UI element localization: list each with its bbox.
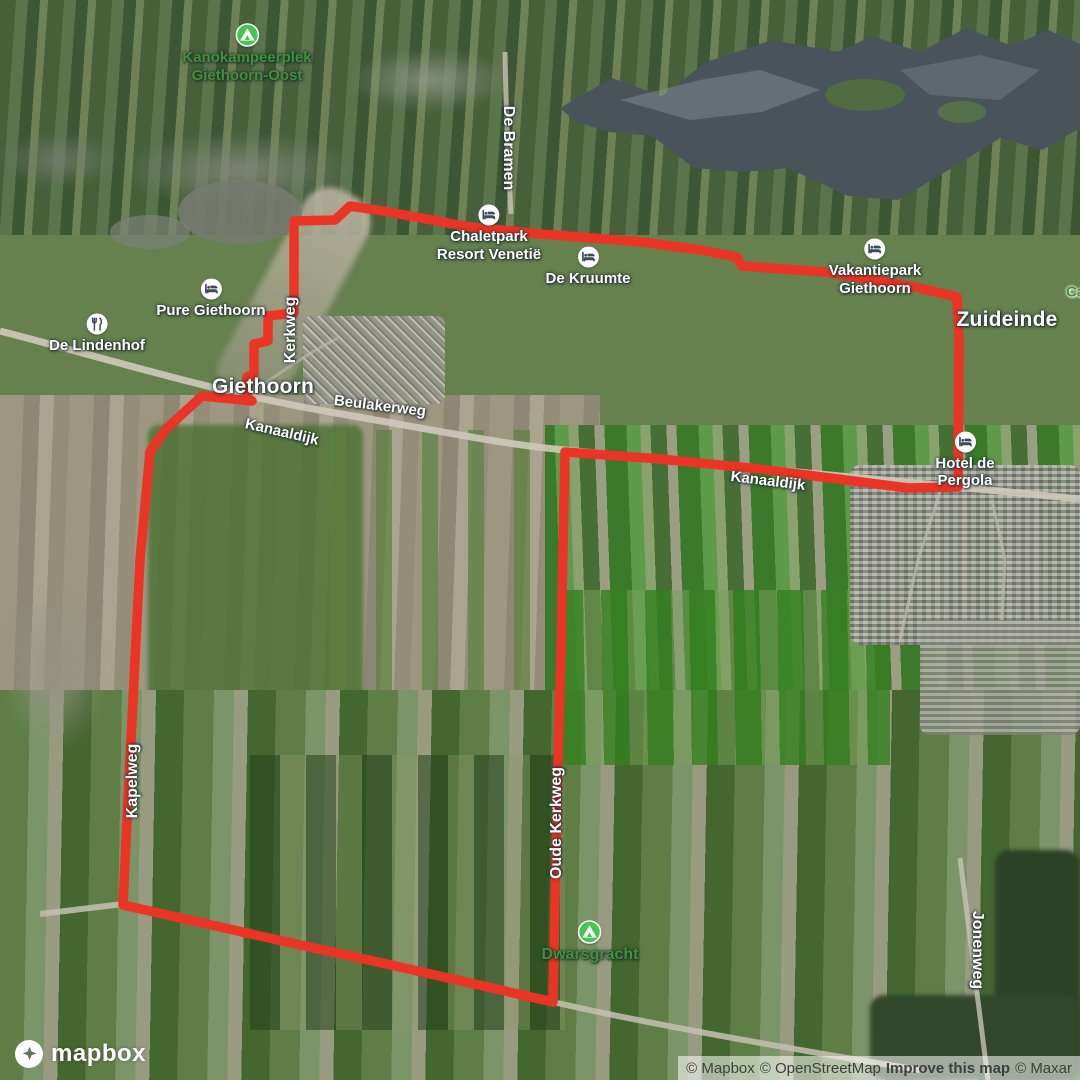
kanokampeerplek-label-line2: Giethoorn-Oost (192, 67, 303, 84)
chaletpark-label-line2: Resort Venetië (437, 246, 541, 263)
dwarsgracht-label: Dwarsgracht (542, 946, 639, 964)
mapbox-wordmark: mapbox (51, 1040, 146, 1068)
place-label-giethoorn: Giethoorn (212, 375, 314, 399)
lodging-icon (477, 203, 501, 227)
poi-de-lindenhof: De Lindenhof (49, 312, 145, 354)
pure-giethoorn-label: Pure Giethoorn (156, 302, 265, 319)
camping-label-partial: Ca (1066, 284, 1080, 301)
road-label-kapelweg: Kapelweg (124, 744, 142, 819)
map-canvas[interactable]: Kanokampeerplek Giethoorn-Oost Dwarsgrac… (0, 0, 1080, 1080)
attribution-improve-link[interactable]: Improve this map (886, 1060, 1010, 1077)
attribution-mapbox-link[interactable]: © Mapbox (686, 1060, 755, 1077)
road-label-jonenweg: Jonenweg (968, 911, 986, 989)
lodging-icon (863, 237, 887, 261)
mapbox-logo[interactable]: mapbox (14, 1039, 146, 1069)
attribution-osm-link[interactable]: © OpenStreetMap (760, 1060, 881, 1077)
poi-vakantiepark: Vakantiepark Giethoorn (829, 237, 922, 298)
poi-pure-giethoorn: Pure Giethoorn (156, 277, 265, 319)
restaurant-icon (85, 312, 109, 336)
poi-hotel-de-pergola: Hotel de Pergola (908, 430, 1023, 490)
poi-dwarsgracht: Dwarsgracht (542, 919, 639, 964)
vakantiepark-label-line1: Vakantiepark (829, 262, 922, 279)
place-label-zuideinde: Zuideinde (957, 308, 1058, 332)
road-label-kerkweg: Kerkweg (282, 297, 300, 364)
de-kruumte-label: De Kruumte (545, 270, 630, 287)
hotel-de-pergola-label: Hotel de Pergola (908, 455, 1023, 490)
campground-icon (234, 22, 260, 48)
road-label-de-bramen: De Bramen (499, 106, 517, 190)
lodging-icon (576, 245, 600, 269)
attribution-bar: © Mapbox © OpenStreetMap Improve this ma… (678, 1056, 1080, 1080)
poi-chaletpark: Chaletpark Resort Venetië (437, 203, 541, 264)
vakantiepark-label-line2: Giethoorn (839, 280, 911, 297)
lodging-icon (953, 430, 977, 454)
route-layer (0, 0, 1080, 1080)
kanokampeerplek-label-line1: Kanokampeerplek (182, 49, 311, 66)
poi-de-kruumte: De Kruumte (545, 245, 630, 287)
mapbox-logo-icon (14, 1039, 44, 1069)
de-lindenhof-label: De Lindenhof (49, 337, 145, 354)
road-label-oude-kerkweg: Oude Kerkweg (548, 767, 566, 879)
campground-icon (577, 919, 603, 945)
lodging-icon (199, 277, 223, 301)
route-line[interactable] (123, 206, 959, 1002)
chaletpark-label-line1: Chaletpark (450, 228, 528, 245)
attribution-maxar: © Maxar (1015, 1060, 1072, 1077)
poi-kanokampeerplek: Kanokampeerplek Giethoorn-Oost (182, 22, 311, 85)
